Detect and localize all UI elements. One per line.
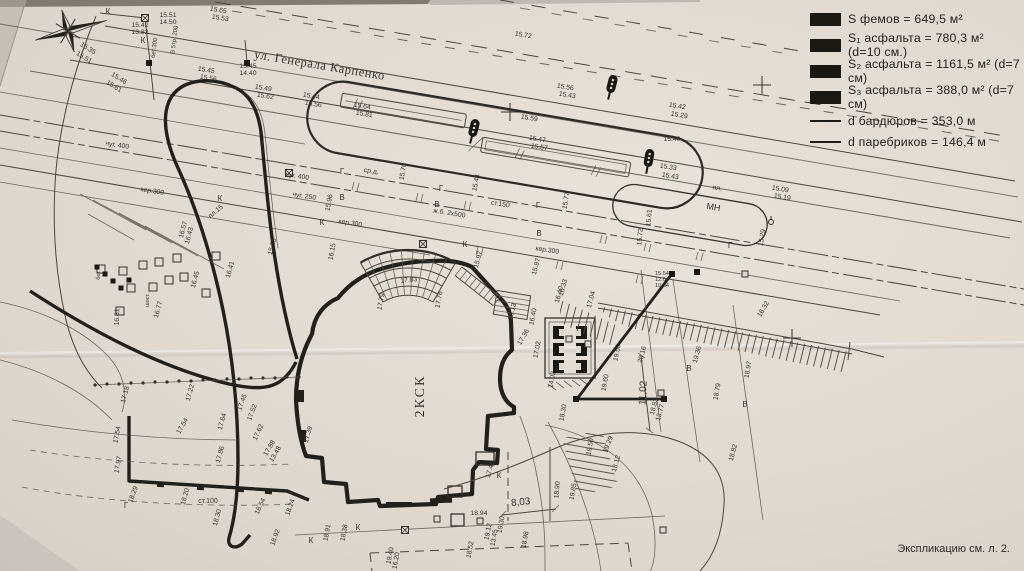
bldg-square-icon xyxy=(139,261,147,269)
elevation-label: 15.61 xyxy=(645,209,653,227)
elevation-label: Г xyxy=(439,184,444,193)
elevation-label: 18.91 xyxy=(323,524,333,542)
elevation-label: 17.83 xyxy=(400,276,418,285)
elevation-label: 19.85 xyxy=(569,483,579,501)
elevation-label: 19.30 xyxy=(497,516,507,534)
elevation-label: 16.41 xyxy=(225,260,236,278)
line-swatch-icon xyxy=(810,120,841,122)
elevation-label: В 5тр. 200 xyxy=(170,25,180,55)
elevation-label: 18.54 xyxy=(254,497,268,516)
elevation-label: 15.43 xyxy=(558,91,576,101)
manhole-black-icon xyxy=(669,271,675,277)
elevation-label: К xyxy=(356,523,361,532)
legend-item-label: S₁ асфальта = 780,3 м² (d=10 см.) xyxy=(848,31,1020,59)
legend-row: S₁ асфальта = 780,3 м² (d=10 см.) xyxy=(810,32,1020,58)
elevation-label: 19.29 xyxy=(602,435,614,454)
elevation-label: В xyxy=(339,193,344,202)
grid-cross-icon xyxy=(501,103,519,121)
elevation-label: кер.300 xyxy=(140,186,165,197)
elevation-label: 18.24 xyxy=(284,498,296,517)
elevation-label: Г xyxy=(340,167,345,176)
hydrant-icon xyxy=(769,216,774,225)
fill-swatch-icon xyxy=(810,39,841,52)
elevation-label: В xyxy=(742,400,747,409)
manhole-black-icon xyxy=(661,396,667,402)
elevation-label: 10.64 xyxy=(655,283,669,289)
bldg-square-icon xyxy=(155,258,163,266)
elevation-label: 15.42 xyxy=(131,22,148,29)
elevation-label: 17.54 xyxy=(113,426,123,444)
elevation-label: Г xyxy=(536,201,541,210)
bldg-square-black-icon xyxy=(103,272,108,277)
bldg-square-black-icon xyxy=(119,286,124,291)
courtyard-boundary xyxy=(30,291,309,500)
elevation-label: К xyxy=(106,7,111,16)
elevation-label: В xyxy=(686,364,691,373)
bldg-square-black-icon xyxy=(111,279,116,284)
elevation-label: бет. xyxy=(96,270,102,280)
bldg-square-icon xyxy=(119,267,127,275)
legend-item-label: S фемов = 649,5 м² xyxy=(848,12,963,26)
bldg-square-icon xyxy=(180,273,188,281)
bldg-square-black-icon xyxy=(127,278,132,283)
elevation-label: 17.79 xyxy=(377,293,387,311)
dim-8-03-label: 8,03 xyxy=(510,496,531,509)
elevation-label: 15.56 xyxy=(304,100,322,110)
elevation-label: 15.96 xyxy=(325,194,335,212)
elevation-label: чуг. 250 xyxy=(292,191,317,202)
photographed-site-plan: ул. Генерала Карпенко15.7215.6515.5315.4… xyxy=(0,0,1024,571)
elevation-label: 17.64 xyxy=(217,412,228,430)
manhole-open-icon xyxy=(434,516,440,522)
legend-row: S₃ асфальта = 388,0 м² (d=7 см) xyxy=(810,84,1020,110)
elevation-label: 19.60 xyxy=(601,374,611,392)
line-swatch-icon xyxy=(810,141,841,143)
elevation-label: 15.57 xyxy=(530,143,548,153)
legend-item-label: S₂ асфальта = 1161,5 м² (d=7 см) xyxy=(848,57,1020,85)
elevation-label: бет.300 xyxy=(151,37,160,59)
elevation-label: 15.97 xyxy=(473,250,484,268)
elevation-label: кер.300 xyxy=(338,218,363,229)
elevation-label: 15.40 xyxy=(663,136,680,143)
elevation-label: 18.97 xyxy=(744,361,754,379)
contour-lines xyxy=(0,302,724,571)
building-label: 2КСК xyxy=(413,375,428,418)
elevation-label: 14.40 xyxy=(239,70,256,77)
elevation-label: Г xyxy=(124,501,129,510)
elevation-label: 20.16 xyxy=(637,345,648,363)
elevation-label: 18.30 xyxy=(212,508,223,526)
manhole-open-icon xyxy=(566,336,572,342)
elevation-label: 18.29 xyxy=(127,485,139,504)
elevation-label: кер.300 xyxy=(535,245,560,256)
manhole-cross-icon xyxy=(402,527,409,534)
dim-8-03-lines xyxy=(499,447,559,521)
elevation-label: 15.43 xyxy=(661,172,679,182)
elevation-label: ж.б. 2х500 xyxy=(433,207,467,220)
elevation-label: 17.36 xyxy=(516,328,531,346)
legend-item-label: S₃ асфальта = 388,0 м² (d=7 см) xyxy=(848,83,1020,111)
sheet-note: Экспликацию см. л. 2. xyxy=(897,543,1010,555)
grid-cross-icon xyxy=(753,76,771,94)
elevation-label: шост. xyxy=(145,293,151,307)
fill-swatch-icon xyxy=(810,65,841,78)
legend: S фемов = 649,5 м² S₁ асфальта = 780,3 м… xyxy=(810,6,1020,152)
manhole-cross-icon xyxy=(142,15,149,22)
legend-row: d бардюров = 353,0 м xyxy=(810,110,1020,131)
elevation-label: 18.92 xyxy=(269,528,281,547)
bldg-square-icon xyxy=(202,289,210,297)
elevation-label: МН xyxy=(706,201,721,213)
compass-rose-icon xyxy=(30,0,112,61)
fill-swatch-icon xyxy=(810,13,841,26)
elevation-label: 18.38 xyxy=(340,524,350,542)
elevation-label: 17.22 xyxy=(185,383,196,401)
elevation-label: К xyxy=(463,240,468,249)
elevation-label: 17.52 xyxy=(246,403,258,422)
elevation-label: 17.02 xyxy=(533,341,543,359)
traffic-island-oval xyxy=(302,76,708,214)
elevation-label: 15.72 xyxy=(514,31,532,41)
elevation-label: 15.29 xyxy=(758,229,768,247)
elevation-label: 18.94 xyxy=(470,510,487,517)
elevation-label: 15.53 xyxy=(211,14,229,24)
elevation-label: 15.81 xyxy=(355,110,373,120)
dashed-outline xyxy=(370,543,632,571)
elevation-label: 18.52 xyxy=(466,541,476,559)
bldg-square-icon xyxy=(173,254,181,262)
elevation-label: К xyxy=(320,218,325,227)
manhole-open-icon xyxy=(585,341,591,347)
elevation-label: 16.32 xyxy=(756,300,771,318)
elevation-label: 16.40 xyxy=(529,308,539,326)
elevation-label: пл.15 xyxy=(207,204,225,220)
elevation-label: К xyxy=(141,36,146,45)
legend-row: S фемов = 649,5 м² xyxy=(810,6,1020,32)
elevation-label: 16.45 xyxy=(190,270,201,288)
legend-row: S₂ асфальта = 1161,5 м² (d=7 см) xyxy=(810,58,1020,84)
legend-item-label: d бардюров = 353,0 м xyxy=(848,114,976,128)
elevation-label: 13.82 xyxy=(131,29,148,36)
elevation-label: 15.59 xyxy=(520,114,538,124)
elevation-label: 15.77 xyxy=(562,192,572,210)
elevation-label: 15.72 xyxy=(636,228,644,246)
elevation-label: 15.97 xyxy=(531,257,542,275)
manhole-open-icon xyxy=(658,390,664,396)
manhole-black-icon xyxy=(573,396,579,402)
elevation-label: 18.30 xyxy=(559,404,569,422)
left-loop-curb xyxy=(165,81,297,547)
elevation-label: 17.86 xyxy=(215,445,226,463)
elevation-label: ст.100 xyxy=(198,498,218,505)
elevation-label: 15.19 xyxy=(773,193,791,203)
elevation-label: 17.04 xyxy=(586,290,597,308)
elevation-label: 18.82 xyxy=(728,443,739,461)
bldg-square-icon xyxy=(127,284,135,292)
dim-11-02-label: 11,02 xyxy=(637,380,649,405)
elevation-label: 15.70 xyxy=(399,163,409,181)
elevation-label: 15.29 xyxy=(670,111,688,121)
elevation-label: 17.62 xyxy=(252,423,266,442)
elevation-label: К xyxy=(497,471,502,480)
elevation-label: В xyxy=(536,229,541,238)
legend-row: d паребриков = 146,4 м xyxy=(810,131,1020,152)
elevation-label: 17.45 xyxy=(236,393,248,412)
elevation-label: пл. xyxy=(712,184,723,192)
elevation-label: Г xyxy=(728,241,733,250)
bldg-square-black-icon xyxy=(95,265,100,270)
legend-item-label: d паребриков = 146,4 м xyxy=(848,135,986,149)
elevation-label: 16.77 xyxy=(153,300,164,318)
manhole-open-icon xyxy=(742,271,748,277)
elevation-label: 15.51 xyxy=(159,12,176,19)
elevation-label: 14.50 xyxy=(159,19,176,26)
bldg-square-icon xyxy=(149,283,157,291)
manhole-open-icon xyxy=(660,527,666,533)
manhole-black-icon xyxy=(694,269,700,275)
elevation-label: 17.18 xyxy=(120,385,131,403)
elevation-label: 18.90 xyxy=(553,481,561,499)
bldg-square-icon xyxy=(212,252,220,260)
elevation-label: 18.20 xyxy=(180,487,191,505)
manhole-black-icon xyxy=(146,60,152,66)
manhole-cross-icon xyxy=(420,241,427,248)
elevation-label: 15.45 xyxy=(239,63,256,70)
elevation-label: 18.12 xyxy=(611,454,622,472)
bldg-square-icon xyxy=(165,276,173,284)
fill-swatch-icon xyxy=(810,91,841,104)
elevation-label: 16.81 xyxy=(114,308,122,325)
building-complex xyxy=(296,261,514,526)
elevation-label: ср.д. xyxy=(363,167,379,176)
elevation-label: 15.62 xyxy=(256,92,274,102)
elevation-label: 16.15 xyxy=(328,243,338,261)
street-name: ул. Генерала Карпенко xyxy=(253,47,386,83)
elevation-label: К xyxy=(218,194,223,203)
elevation-label: 18.98 xyxy=(521,531,531,549)
elevation-label: 18.79 xyxy=(713,383,723,401)
elevation-label: 15.15 xyxy=(267,237,278,255)
traffic-light-icon xyxy=(642,148,655,174)
elevation-label: 17.97 xyxy=(114,456,124,474)
manhole-open-icon xyxy=(477,518,483,524)
elevation-label: 17.54 xyxy=(175,417,190,435)
traffic-light-icon xyxy=(466,118,481,144)
traffic-light-icon xyxy=(604,74,619,100)
elevation-label: К xyxy=(309,536,314,545)
elevation-label: 17.39 xyxy=(303,425,314,443)
